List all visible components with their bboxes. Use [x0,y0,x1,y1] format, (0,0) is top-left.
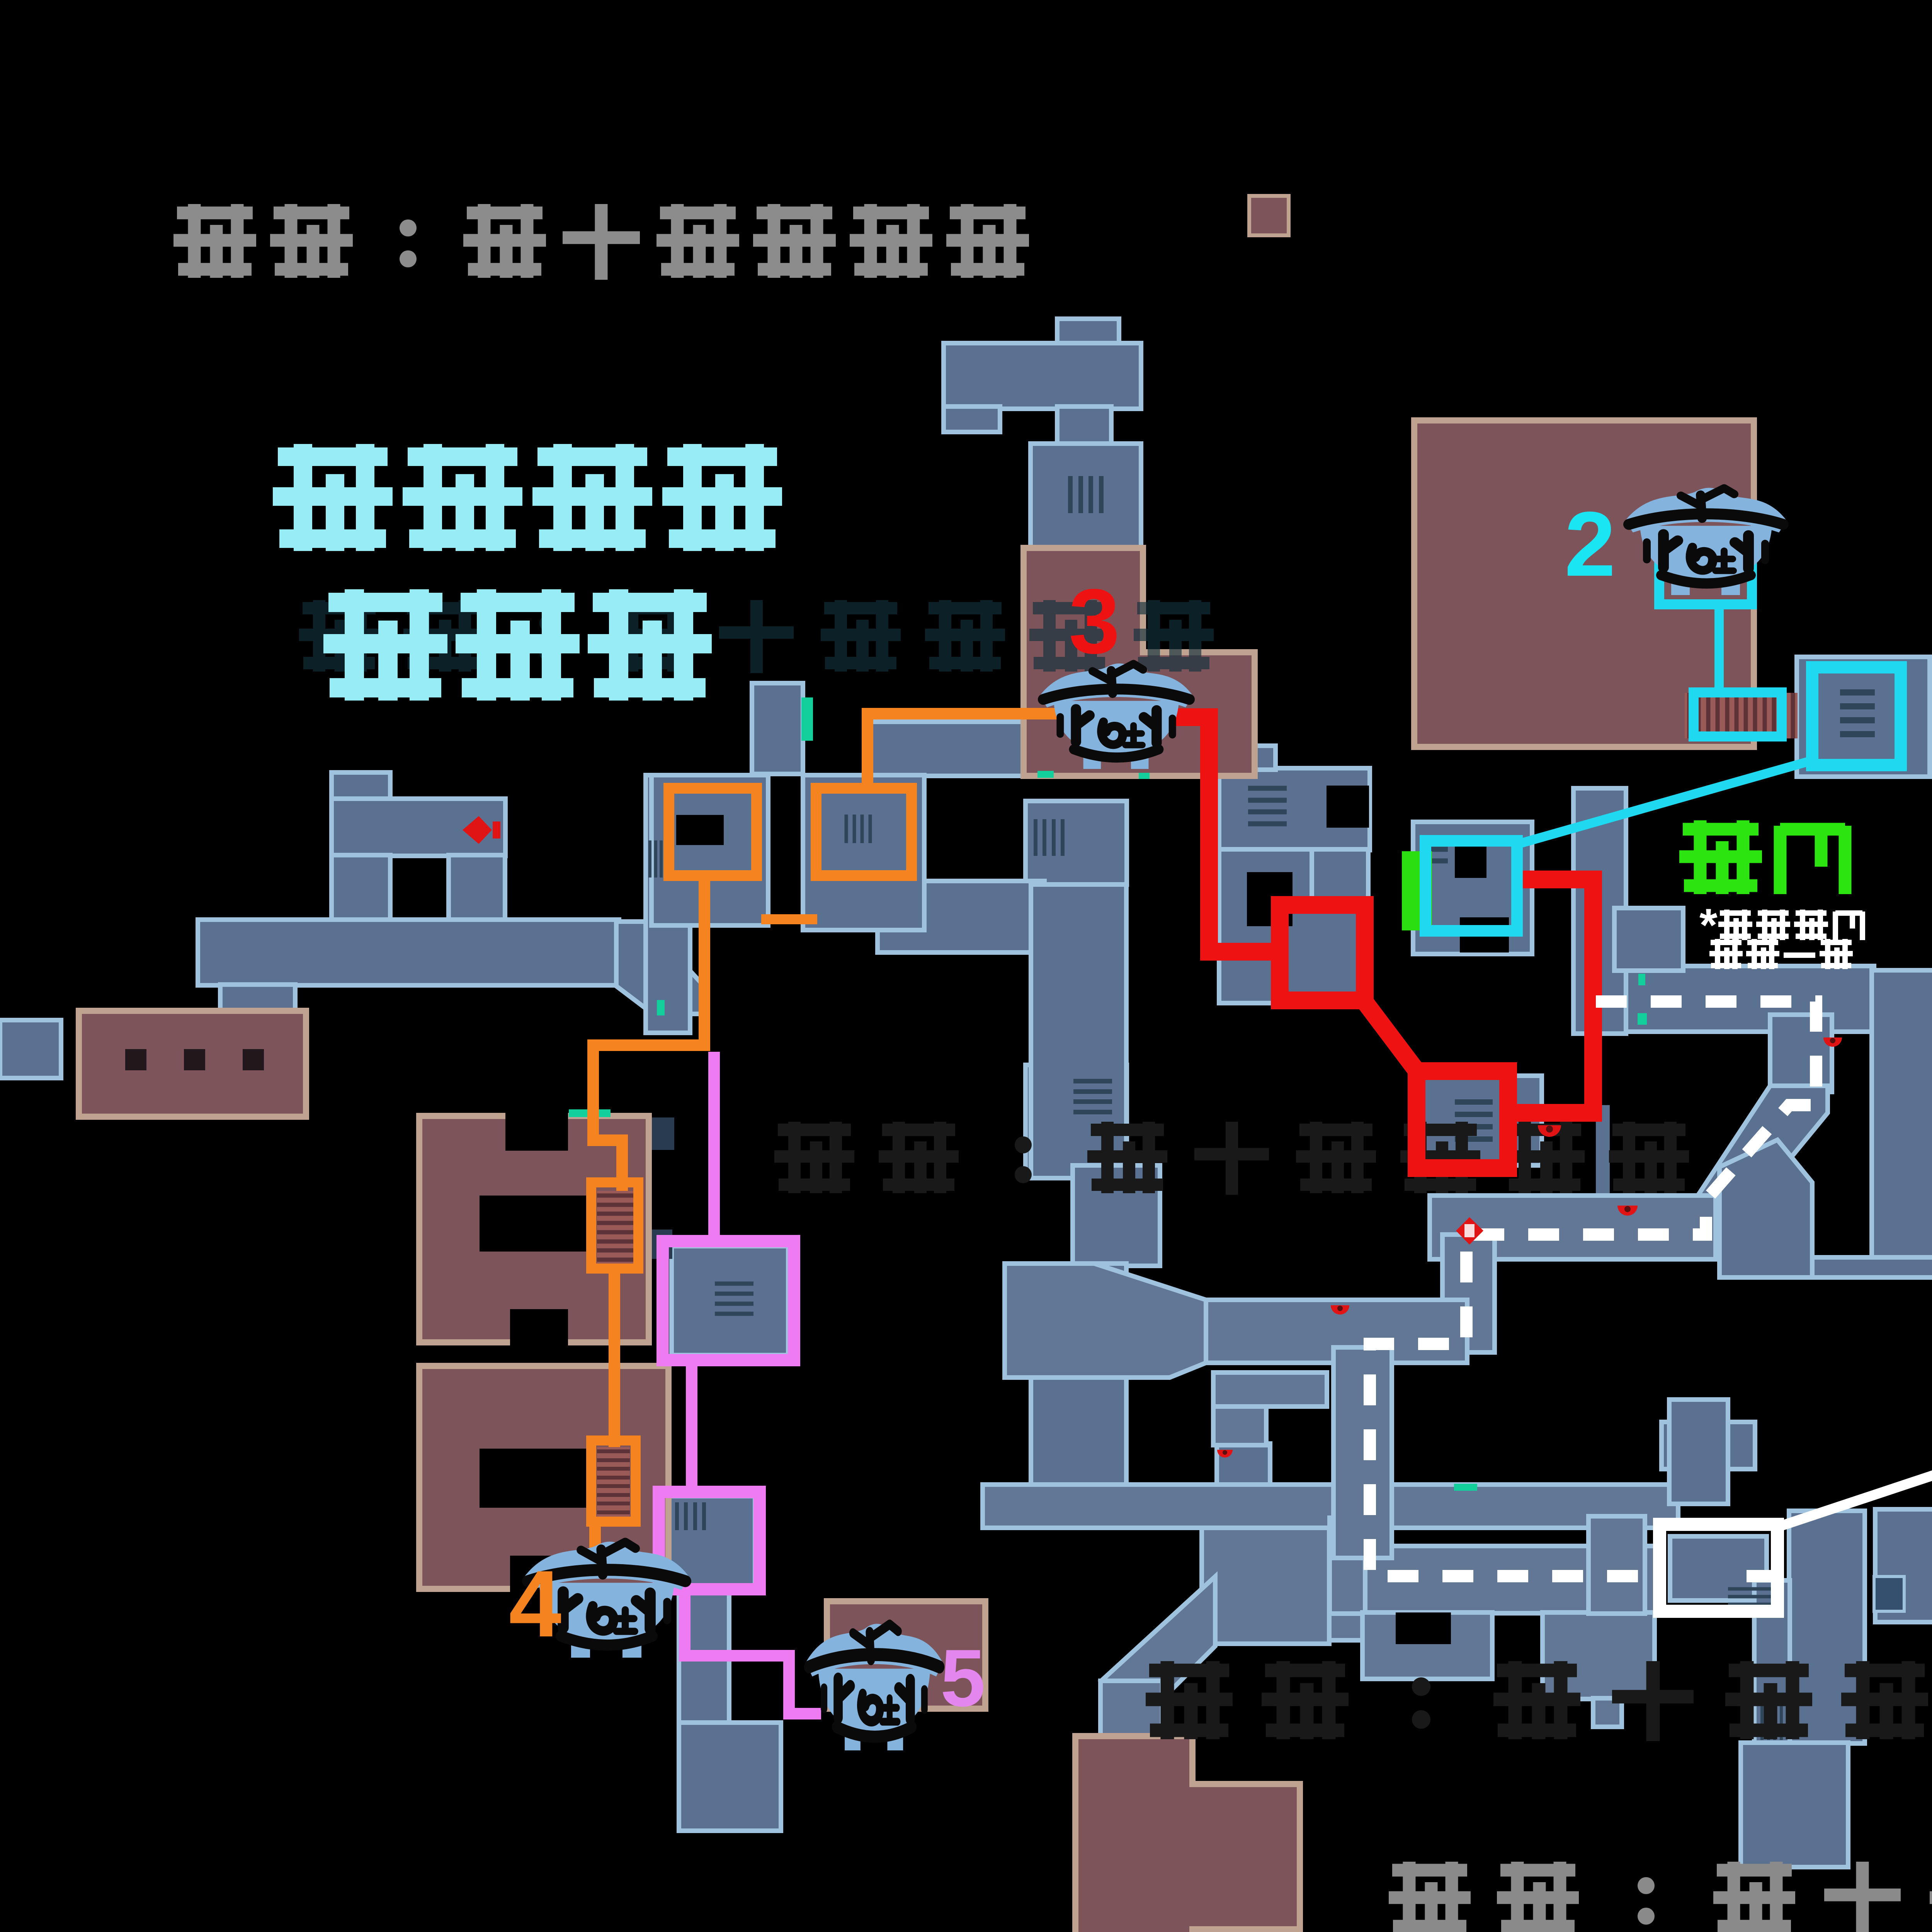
svg-text:3: 3 [1069,570,1120,673]
svg-text:4: 4 [509,1551,561,1656]
svg-text:2: 2 [1565,493,1616,595]
svg-text:5: 5 [940,1633,986,1723]
